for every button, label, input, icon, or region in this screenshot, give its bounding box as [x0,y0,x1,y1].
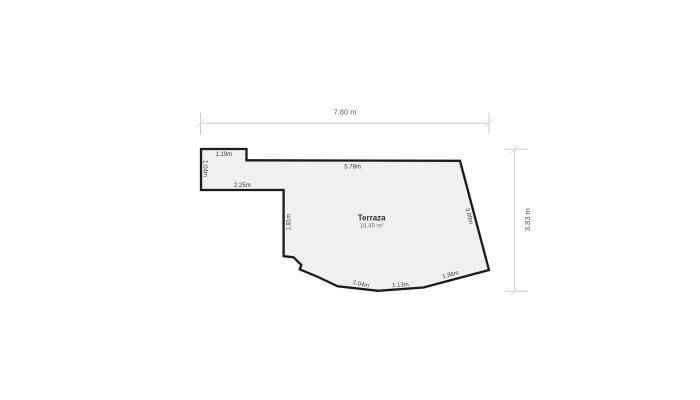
svg-text:2.25m: 2.25m [234,183,251,189]
svg-text:1.81m: 1.81m [287,214,293,231]
svg-text:1.13m: 1.13m [392,282,409,289]
svg-text:7.80 m: 7.80 m [334,108,357,117]
svg-text:1.19m: 1.19m [215,152,232,158]
svg-text:18.49 m²: 18.49 m² [360,223,384,229]
svg-text:5.78m: 5.78m [344,164,361,170]
svg-text:1.04m: 1.04m [202,160,208,177]
svg-text:Terraza: Terraza [358,213,386,222]
svg-text:3.83 m: 3.83 m [523,208,532,231]
